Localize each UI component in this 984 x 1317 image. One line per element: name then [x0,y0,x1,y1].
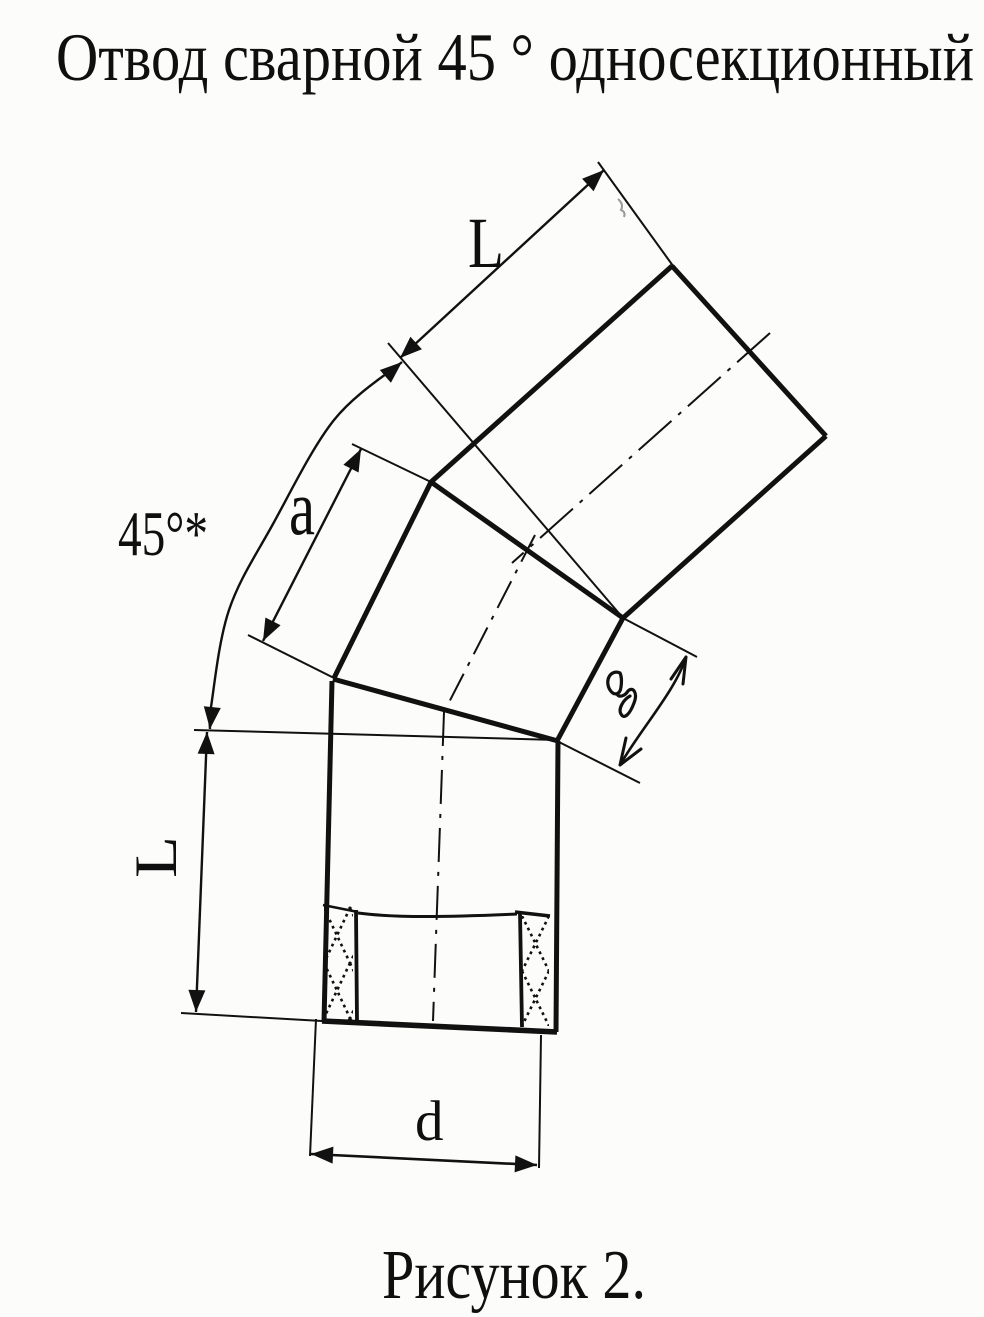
svg-text:Рисунок 2.: Рисунок 2. [382,1237,646,1314]
svg-text:L: L [468,203,504,283]
svg-text:45°*: 45°* [118,498,208,569]
svg-text:Отвод сварной 45 ° односекцион: Отвод сварной 45 ° односекционный [56,19,974,95]
svg-text:a: a [289,464,315,551]
svg-text:L: L [123,836,189,878]
svg-text:d: d [415,1090,444,1153]
